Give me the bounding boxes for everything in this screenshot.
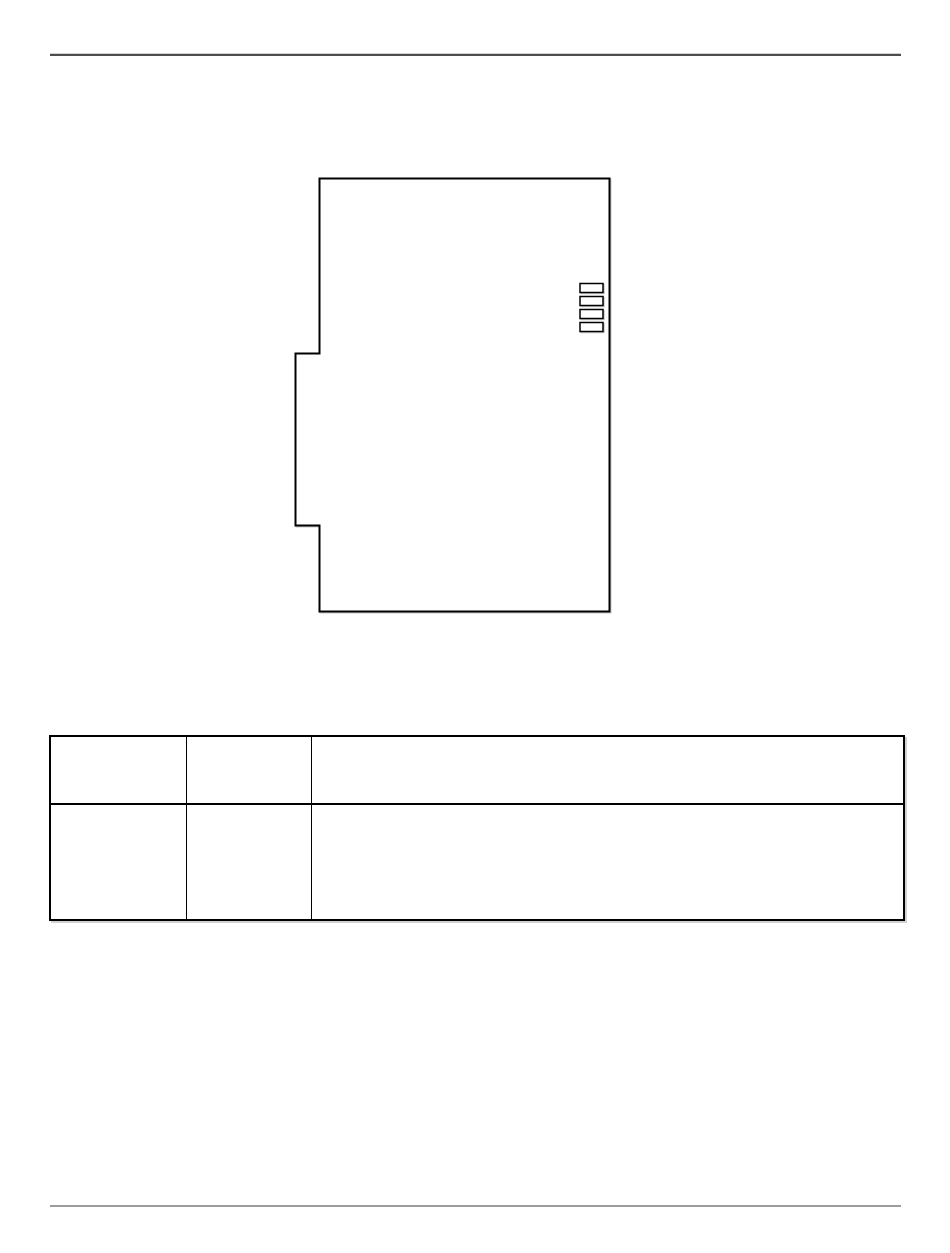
table-cell (312, 804, 905, 920)
led-indicator-icon (580, 310, 603, 319)
header-rule (50, 53, 901, 56)
table-cell (187, 804, 312, 920)
led-indicator-icon (580, 284, 603, 293)
module-outline-figure (290, 170, 620, 622)
table-cell (312, 736, 905, 804)
table-row (50, 736, 904, 804)
led-indicator-icon (580, 297, 603, 306)
page (0, 0, 950, 1253)
spec-table (49, 735, 905, 921)
table-cell (187, 736, 312, 804)
module-outline-path (296, 179, 610, 612)
table-cell (50, 736, 187, 804)
footer-rule (50, 1205, 901, 1207)
table-cell (50, 804, 187, 920)
spec-table-body (50, 736, 904, 920)
led-indicator-icon (580, 323, 603, 332)
table-row (50, 804, 904, 920)
document-page: { "page": { "background_color": "#ffffff… (0, 0, 950, 1253)
